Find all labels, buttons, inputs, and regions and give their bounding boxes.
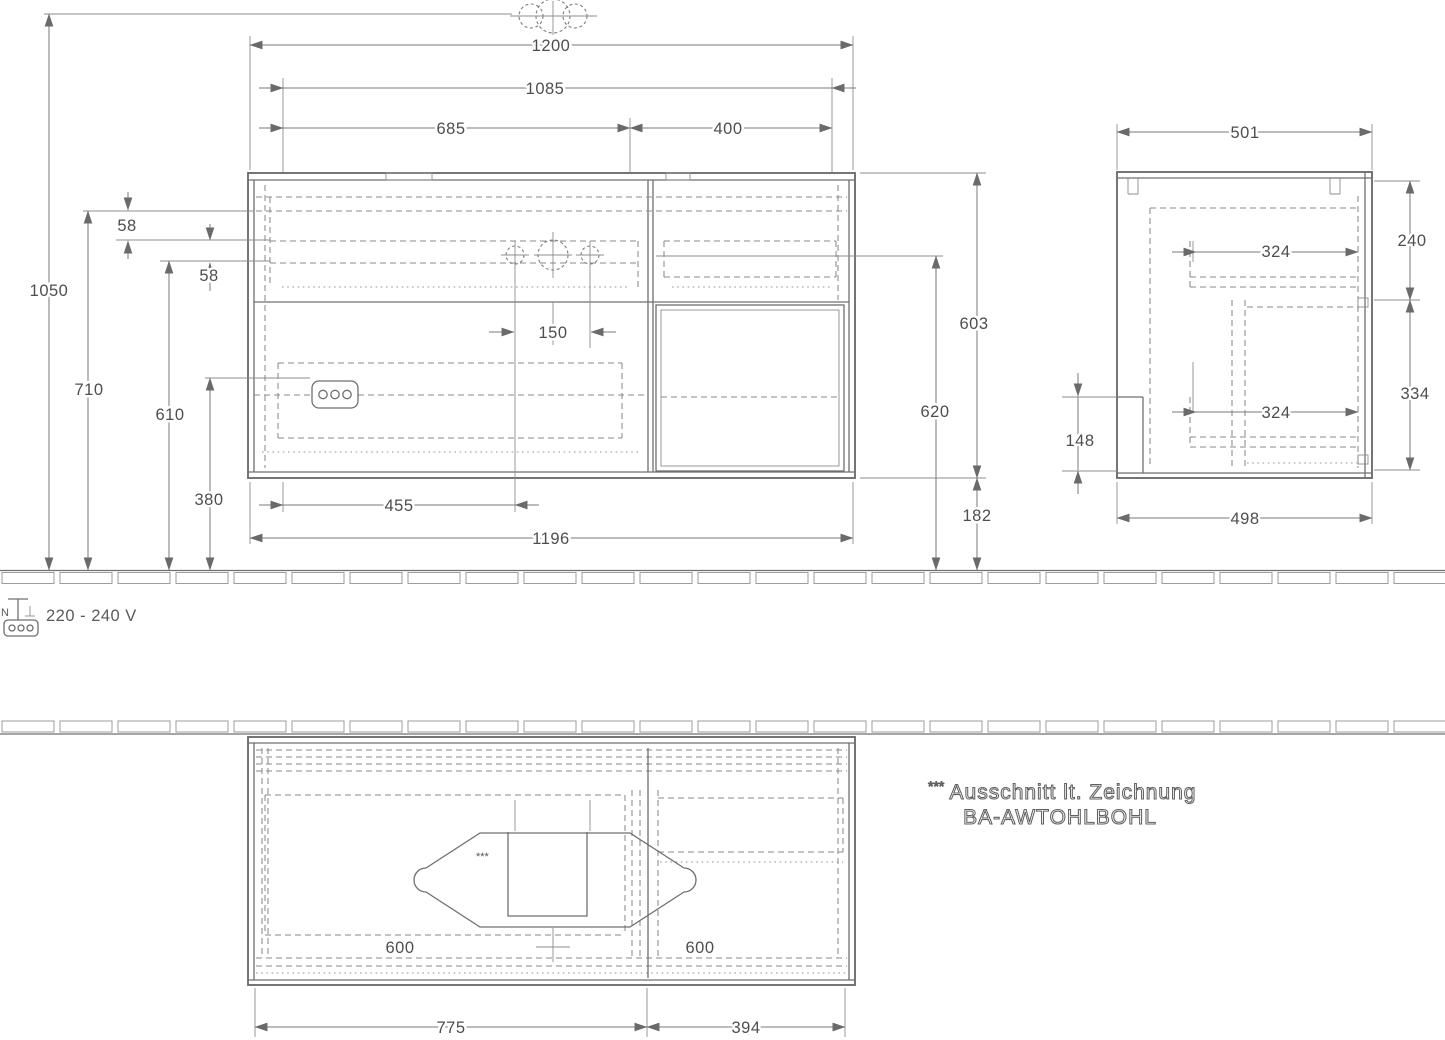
dim-rear-top: 240 [1397, 232, 1426, 250]
note-line1: Ausschnitt lt. Zeichnung [950, 781, 1197, 804]
dim-gap-a: 58 [117, 217, 136, 235]
dim-front-height: 603 [959, 315, 988, 333]
dimensions: 1200 1085 685 400 150 455 1196 1050 710 … [30, 14, 1430, 1037]
dim-inner-width: 1085 [526, 80, 565, 98]
dim-depth-bottom: 498 [1230, 510, 1259, 528]
cutout-note: *** Ausschnitt lt. Zeichnung BA-AWTOHLBO… [928, 778, 1196, 829]
side-view [1117, 172, 1372, 478]
dim-siphon-height: 610 [155, 406, 184, 424]
dim-module-right: 600 [685, 939, 714, 957]
vanity-technical-drawing: *** 1200 [0, 0, 1445, 1040]
power-outlet-cutout [312, 381, 358, 408]
dim-drain-offset: 455 [384, 497, 413, 515]
dim-faucet-spacing: 150 [538, 324, 567, 342]
neutral-label: N [1, 607, 9, 619]
dim-right-section-width: 400 [713, 120, 742, 138]
dim-plan-width-left: 775 [436, 1019, 465, 1037]
note-line2: BA-AWTOHLBOHL [963, 806, 1157, 829]
dim-rear-bottom: 334 [1400, 385, 1429, 403]
countertop-cutout [508, 832, 587, 916]
note-stars: *** [928, 778, 945, 794]
dim-module-left: 600 [385, 939, 414, 957]
wall-hatch-lower [0, 720, 1445, 734]
dim-total-width: 1200 [532, 37, 571, 55]
wall-anchor-left [1128, 178, 1138, 194]
power-connection: N 220 - 240 V [1, 599, 137, 636]
dim-bottom-clearance: 182 [962, 507, 991, 525]
technical-drawing-page: *** 1200 [0, 0, 1445, 1040]
washbasin-outline [414, 833, 696, 927]
wall-anchor-right [1330, 178, 1340, 194]
dim-plan-width-right: 394 [731, 1019, 760, 1037]
dim-recess: 148 [1065, 432, 1094, 450]
mount-bracket-right [666, 173, 690, 180]
earth-icon [8, 599, 35, 620]
wall-hatch-upper [0, 571, 1445, 586]
cutout-marker: *** [476, 851, 490, 863]
dim-body-width: 1196 [532, 530, 569, 548]
drain-center-mark [536, 928, 570, 962]
dim-mid-height: 710 [74, 381, 103, 399]
dim-depth: 501 [1230, 124, 1259, 142]
dim-drawer-top-depth: 324 [1261, 243, 1290, 261]
faucet-hole-symbol [510, 0, 597, 35]
dim-left-section-width: 685 [436, 120, 465, 138]
voltage-label: 220 - 240 V [46, 607, 137, 625]
mount-bracket-left [386, 173, 432, 180]
dim-gap-b: 58 [199, 267, 218, 285]
dim-total-height: 1050 [30, 282, 69, 300]
dim-low-height: 380 [194, 491, 223, 509]
power-socket-icon [4, 620, 38, 636]
dim-basin-height: 620 [920, 403, 949, 421]
extension-lines [44, 14, 1420, 1037]
dim-drawer-bottom-depth: 324 [1261, 404, 1290, 422]
plan-view: *** [248, 737, 855, 985]
